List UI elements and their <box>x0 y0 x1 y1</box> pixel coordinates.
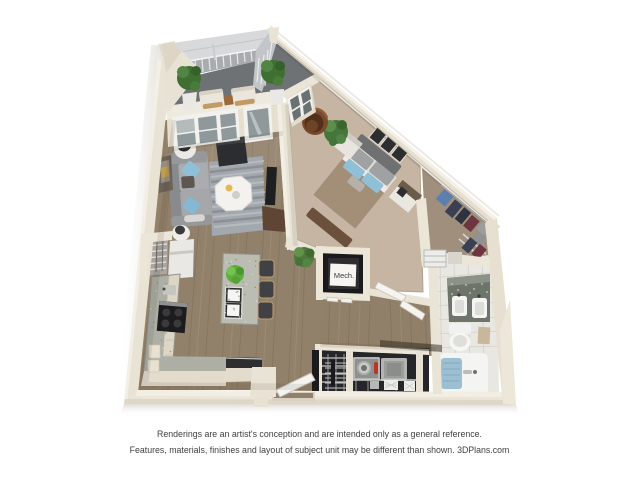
svg-text:Mech.: Mech. <box>334 271 354 280</box>
